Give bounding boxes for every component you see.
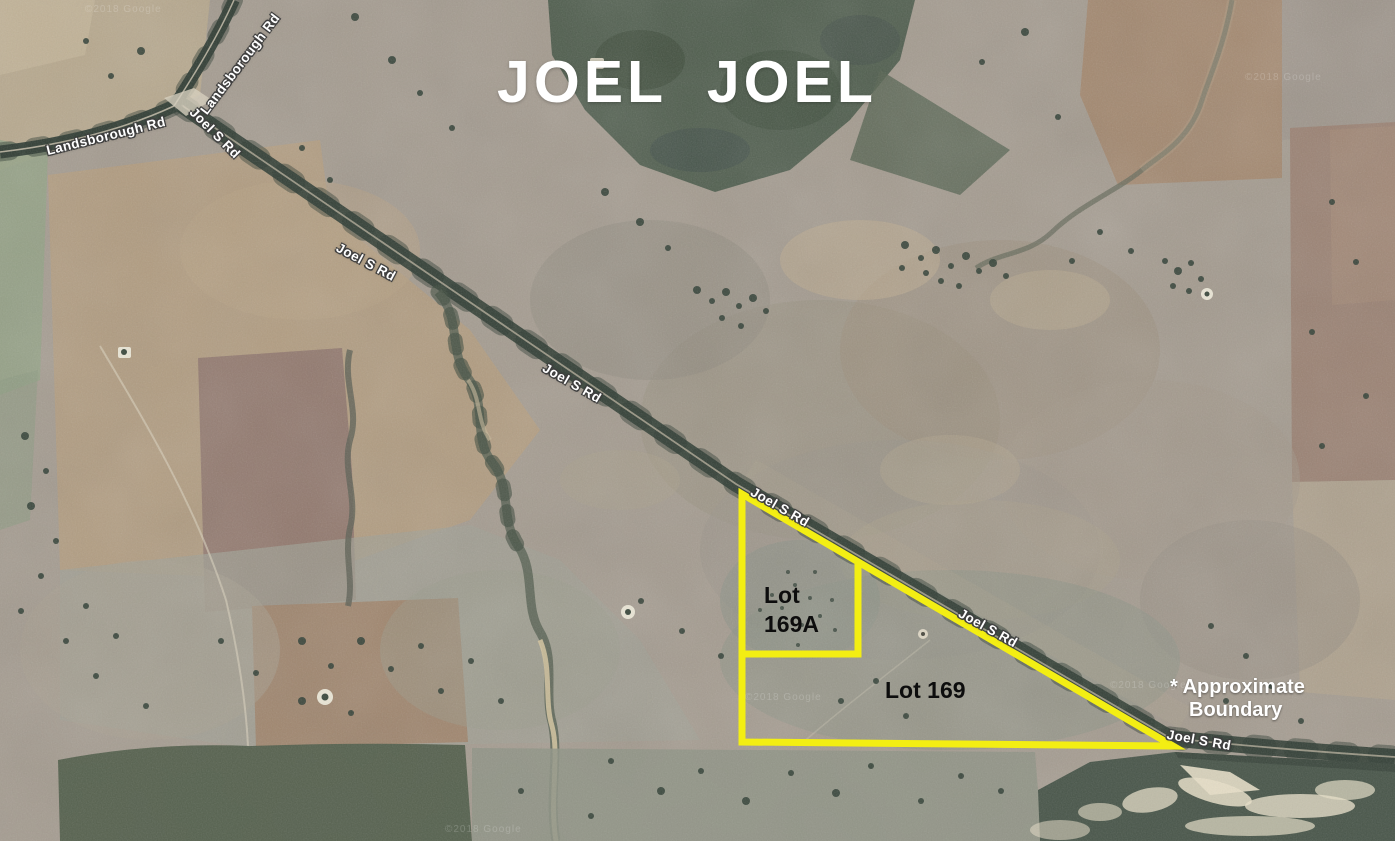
aerial-map: JOEL JOEL Landsborough Rd Landsborough R… [0,0,1395,841]
satellite-imagery [0,0,1395,841]
image-grain [0,0,1395,841]
